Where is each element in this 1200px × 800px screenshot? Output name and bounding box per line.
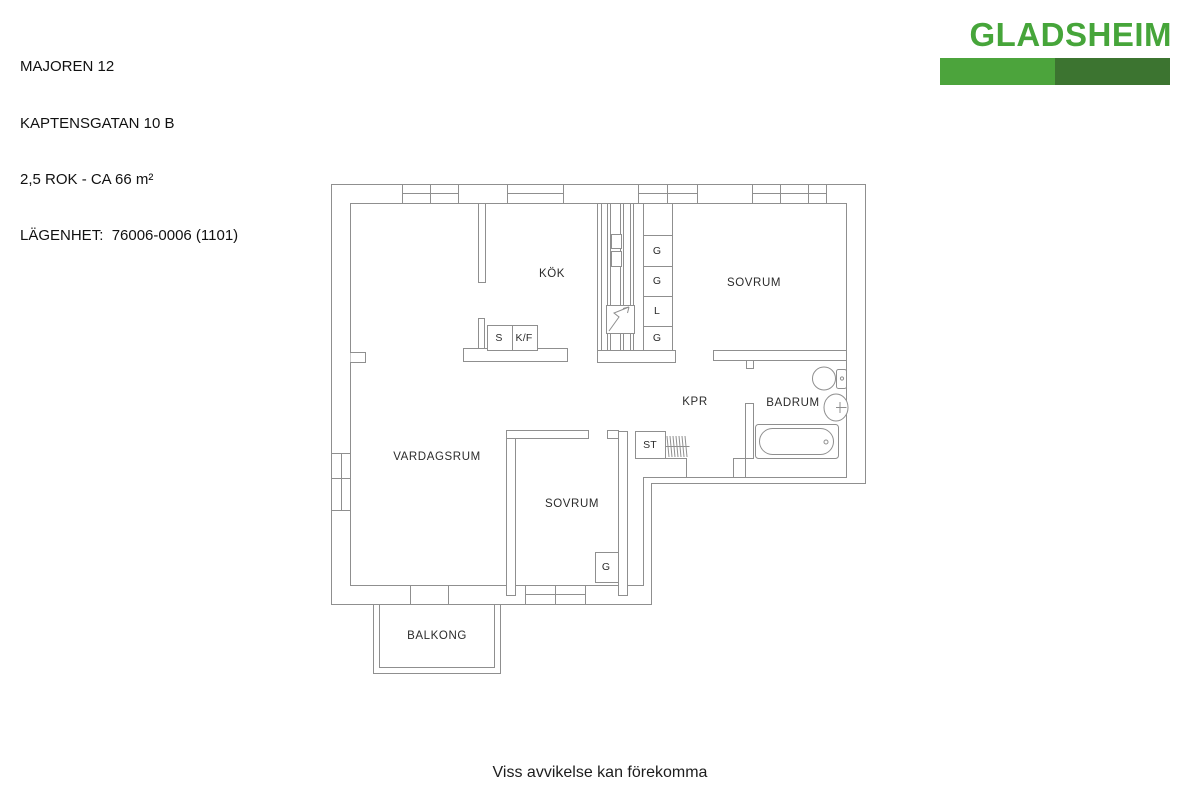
room-label-kok: KÖK [539, 268, 565, 280]
label-closet-g3: G [653, 332, 661, 344]
label-closet-g1: G [653, 245, 661, 257]
toilet-icon [813, 367, 847, 390]
room-label-sovrum1: SOVRUM [727, 277, 781, 289]
bedroom1-wall [714, 351, 847, 369]
room-label-balkong: BALKONG [407, 630, 467, 642]
room-label-vardagsrum: VARDAGSRUM [393, 451, 481, 463]
hall-step-wall [666, 459, 687, 478]
label-st-closet: ST [643, 439, 657, 451]
label-stove: S [495, 332, 502, 344]
room-label-kpr: KPR [682, 396, 707, 408]
label-closet-g4: G [602, 561, 610, 573]
bathroom-walls [734, 404, 754, 478]
window-bottom-wall [526, 586, 586, 605]
bathtub-icon [756, 425, 839, 459]
coat-rack-icon [666, 436, 690, 457]
label-closet-l: L [654, 305, 660, 317]
disclaimer-text: Viss avvikelse kan förekomma [0, 764, 1200, 782]
floorplan-page: MAJOREN 12 KAPTENSGATAN 10 B 2,5 ROK - C… [0, 0, 1200, 800]
room-label-sovrum2: SOVRUM [545, 498, 599, 510]
floor-plan-svg [0, 0, 1200, 800]
windows-top-wall [403, 185, 827, 204]
room-label-badrum: BADRUM [766, 397, 819, 409]
label-fridge-freezer: K/F [516, 332, 533, 344]
window-left-wall [332, 454, 351, 511]
label-closet-g2: G [653, 275, 661, 287]
sink-icon [824, 394, 848, 421]
balcony-door-opening [411, 586, 449, 605]
